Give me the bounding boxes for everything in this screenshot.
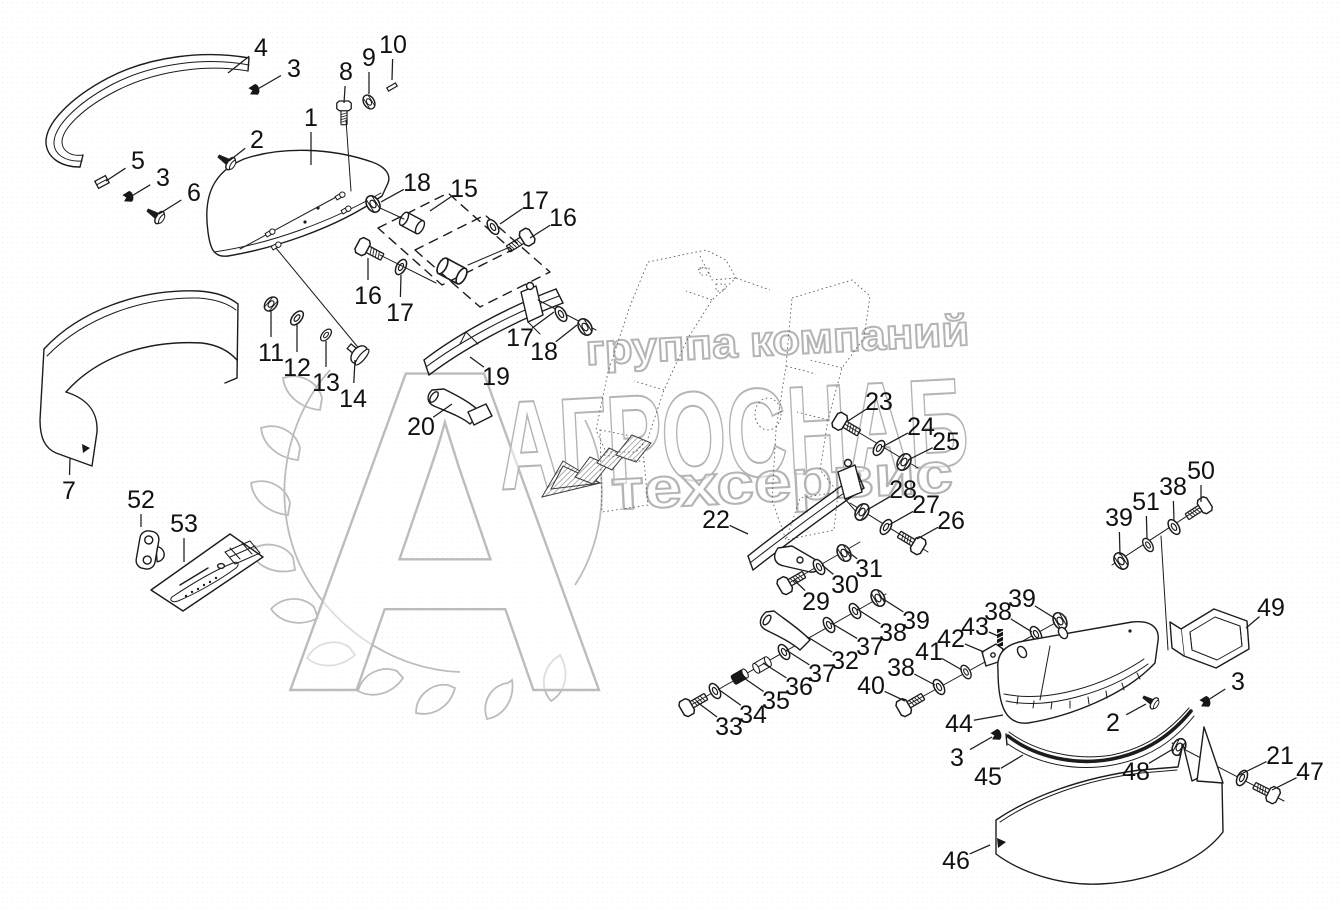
clip-3-icon [991, 729, 1002, 741]
leader-line-21 [1237, 762, 1267, 776]
part-number-39: 39 [1105, 504, 1133, 532]
part-number-29: 29 [802, 588, 830, 616]
leader-line-26 [917, 527, 938, 539]
part-number-3: 3 [950, 744, 964, 772]
part-number-3: 3 [156, 164, 170, 192]
part-number-44: 44 [945, 710, 973, 738]
leader-line-51 [1146, 516, 1147, 539]
part-number-53: 53 [170, 510, 198, 538]
nut-39-icon [868, 587, 888, 608]
leader-line-17 [400, 275, 401, 297]
side-panel-7 [40, 291, 238, 466]
spring-pin-43-icon [997, 629, 1003, 646]
clip-52 [135, 530, 168, 572]
clip-mark [82, 444, 90, 453]
trim-strip-4 [46, 55, 249, 167]
side-panel-44 [998, 622, 1159, 723]
leader-line-38 [914, 674, 935, 685]
clip-3-icon [123, 191, 134, 203]
logo-letter: А [279, 275, 611, 788]
part-number-21: 21 [1266, 742, 1294, 770]
washer-17-icon [393, 258, 409, 277]
leader-line-44 [974, 715, 1003, 720]
part-number-48: 48 [1122, 758, 1150, 786]
nut-11-icon [262, 294, 281, 313]
leader-line-35 [741, 676, 764, 692]
leader-line-43 [989, 632, 998, 636]
part-number-1: 1 [304, 104, 318, 132]
pin-10-icon [387, 83, 397, 91]
part-number-25: 25 [932, 428, 960, 456]
part-number-47: 47 [1296, 758, 1324, 786]
leader-line-39 [1119, 532, 1120, 555]
part-number-10: 10 [379, 31, 407, 59]
part-number-9: 9 [362, 44, 376, 72]
bolt-50-icon [1183, 496, 1214, 524]
part-number-3: 3 [287, 55, 301, 83]
part-number-16: 16 [549, 204, 577, 232]
part-number-5: 5 [131, 147, 145, 175]
part-number-39: 39 [1008, 585, 1036, 613]
leader-line-3 [256, 76, 281, 91]
washer-38-icon [931, 678, 947, 697]
part-number-40: 40 [857, 672, 885, 700]
bracket-49 [1170, 609, 1249, 668]
leader-line-16 [530, 225, 550, 238]
leader-line-38 [1173, 501, 1174, 521]
leader-line-47 [1272, 778, 1297, 790]
part-number-20: 20 [407, 413, 435, 441]
leader-line-40 [885, 691, 905, 701]
part-number-26: 26 [937, 507, 965, 535]
part-number-19: 19 [482, 363, 510, 391]
parts-diagram-page: А группа компаний АГРОСНАБ техсервис [0, 0, 1339, 911]
part-number-3: 3 [1231, 668, 1245, 696]
leader-line-33 [697, 702, 717, 717]
leader-line-27 [889, 511, 913, 525]
clip-3-icon [249, 84, 260, 96]
leader-line-3 [130, 185, 150, 197]
part-number-45: 45 [974, 763, 1002, 791]
washer-27-icon [878, 518, 894, 537]
part-number-18: 18 [403, 169, 431, 197]
part-number-12: 12 [283, 354, 311, 382]
part-number-50: 50 [1187, 457, 1215, 485]
leader-line-36 [763, 663, 786, 678]
part-number-8: 8 [339, 58, 353, 86]
leader-line-34 [718, 689, 741, 705]
part-number-24: 24 [907, 413, 935, 441]
part-number-6: 6 [187, 179, 201, 207]
clip-3-icon [1200, 696, 1211, 708]
leader-line-6 [159, 200, 181, 214]
bracket-32 [760, 611, 810, 650]
leader-line-46 [970, 845, 990, 854]
part-number-51: 51 [1132, 488, 1160, 516]
screw-6-icon [144, 204, 167, 225]
part-number-7: 7 [62, 477, 76, 505]
leader-line-15 [430, 196, 452, 211]
part-number-14: 14 [339, 385, 367, 413]
washer-17-icon [485, 218, 501, 237]
clip-5-icon [95, 176, 109, 189]
part-number-16: 16 [354, 282, 382, 310]
leader-line-17 [500, 209, 523, 225]
part-number-2: 2 [250, 126, 264, 154]
part-number-52: 52 [127, 486, 155, 514]
leader-line-7 [70, 458, 71, 475]
nut-31-icon [834, 542, 854, 563]
part-number-18: 18 [530, 338, 558, 366]
part-number-38: 38 [1159, 473, 1187, 501]
leader-line-39 [1035, 606, 1056, 619]
part-number-17: 17 [386, 299, 414, 327]
leader-line-38 [1011, 619, 1032, 632]
part-number-39: 39 [902, 607, 930, 635]
part-number-32: 32 [831, 647, 859, 675]
leader-line-41 [942, 659, 962, 671]
nut-39-icon [1111, 550, 1131, 572]
part-number-27: 27 [912, 491, 940, 519]
part-number-31: 31 [855, 555, 883, 583]
bolt-16-icon [354, 236, 387, 264]
part-number-38: 38 [887, 654, 915, 682]
leader-line-45 [1001, 755, 1023, 768]
bolt-8-icon [337, 101, 351, 125]
part-number-4: 4 [254, 34, 268, 62]
leader-line-10 [392, 59, 393, 80]
leader-line-3 [970, 737, 992, 750]
leader-line-32 [806, 636, 832, 652]
leader-line-22 [730, 525, 748, 534]
screw-2-icon [1140, 692, 1161, 711]
label-plate-53 [151, 534, 263, 611]
leader-line-3 [1208, 689, 1225, 700]
nut-9-icon [361, 93, 378, 111]
bushing-icon [398, 211, 427, 235]
leader-line-2 [1126, 704, 1146, 715]
part-number-22: 22 [702, 506, 730, 534]
part-number-15: 15 [450, 175, 478, 203]
parts-diagram-canvas: А группа компаний АГРОСНАБ техсервис [0, 0, 1339, 911]
leader-line-42 [965, 644, 984, 652]
washer-51-icon [1141, 537, 1156, 554]
part-number-2: 2 [1106, 709, 1120, 737]
washer-41-icon [959, 664, 974, 681]
part-number-23: 23 [865, 388, 893, 416]
leader-line-5 [106, 168, 126, 181]
part-number-13: 13 [312, 369, 340, 397]
spacer-35-icon [730, 668, 749, 685]
part-number-17: 17 [521, 187, 549, 215]
part-number-11: 11 [258, 339, 284, 367]
part-number-49: 49 [1257, 594, 1285, 622]
part-number-46: 46 [942, 847, 970, 875]
